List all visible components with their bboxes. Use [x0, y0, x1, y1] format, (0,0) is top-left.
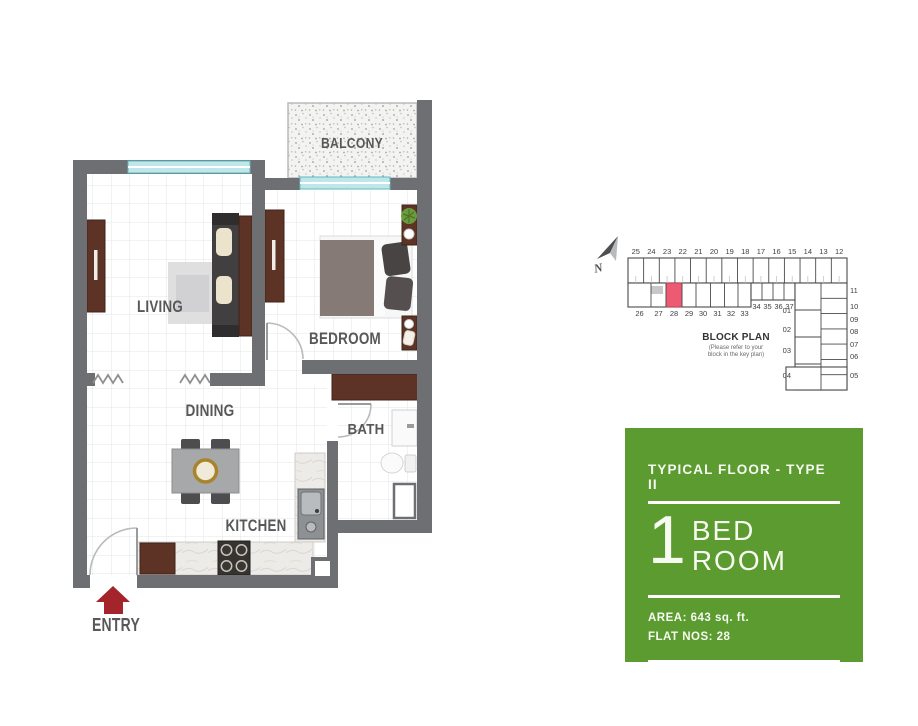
sink-knob: [306, 522, 316, 532]
divider-rule: [648, 660, 840, 663]
north-arrow-icon: N: [592, 236, 618, 276]
unit-number: 20: [710, 247, 718, 256]
unit-number: 30: [699, 309, 707, 318]
unit-number: 29: [685, 309, 693, 318]
floor-plan: BALCONY: [55, 85, 445, 645]
unit-number: 14: [804, 247, 812, 256]
info-panel: TYPICAL FLOOR - TYPE II 1 BED ROOM AREA:…: [625, 428, 863, 662]
living-window: [128, 161, 250, 173]
bed-duvet: [320, 240, 376, 316]
block-plan-caption-1: (Please refer to your: [709, 345, 763, 351]
cabinet-handle: [94, 250, 98, 280]
unit-number: 36: [774, 302, 782, 311]
tap-icon: [407, 424, 414, 428]
shaft: [394, 484, 415, 518]
unit-number: 07: [850, 340, 858, 349]
building-outline: [628, 258, 847, 390]
balcony: BALCONY: [288, 103, 417, 178]
unit-number: 15: [788, 247, 796, 256]
faucet-icon: [315, 509, 319, 513]
unit-number: 03: [783, 346, 791, 355]
north-label: N: [592, 260, 606, 276]
decor-item: [405, 320, 414, 329]
wardrobe-handle: [272, 240, 276, 270]
unit-number: 33: [740, 309, 748, 318]
divider-rule: [648, 595, 840, 598]
unit-number: 04: [783, 371, 791, 380]
bath-wardrobe: [332, 374, 418, 400]
bedroom-count: 1: [648, 508, 684, 573]
bed-pillow: [383, 276, 413, 312]
unit-number: 02: [783, 325, 791, 334]
bedroom-count-row: 1 BED ROOM: [648, 508, 840, 586]
unit-number: 05: [850, 371, 858, 380]
type-line-1: BED: [692, 516, 787, 546]
dining-label: DINING: [186, 402, 235, 420]
block-plan-title: BLOCK PLAN: [702, 332, 770, 343]
unit-number: 34: [752, 302, 760, 311]
sofa-armrest-top: [212, 213, 239, 225]
sofa-cushion: [216, 228, 232, 256]
block-plan: N 25242322212019181716151413122627282930…: [580, 228, 880, 398]
unit-number: 24: [647, 247, 655, 256]
unit-number: 18: [741, 247, 749, 256]
unit-number: 21: [694, 247, 702, 256]
toilet-tank: [405, 455, 416, 472]
bedroom-type: BED ROOM: [692, 516, 787, 576]
toilet: [381, 453, 403, 473]
unit-number: 35: [763, 302, 771, 311]
unit-number: 31: [713, 309, 721, 318]
page: BALCONY: [0, 0, 918, 726]
bed-pillow: [381, 241, 411, 276]
kitchen-cabinet: [140, 543, 175, 574]
sofa-console: [239, 216, 252, 336]
unit-number: 12: [835, 247, 843, 256]
unit-number: 16: [772, 247, 780, 256]
unit-number: 28: [670, 309, 678, 318]
kitchen-label: KITCHEN: [226, 517, 287, 535]
column: [315, 561, 330, 576]
unit-number: 10: [850, 302, 858, 311]
unit-number: 23: [663, 247, 671, 256]
entry-arrow-icon: [96, 586, 130, 614]
stairs: [651, 286, 663, 294]
highlighted-flat-28: [666, 283, 682, 307]
unit-number: 08: [850, 327, 858, 336]
unit-number: 01: [783, 306, 791, 315]
sofa-cushion: [216, 276, 232, 304]
unit-number: 25: [632, 247, 640, 256]
entry-marker: ENTRY: [92, 586, 140, 635]
panel-title: TYPICAL FLOOR - TYPE II: [648, 462, 840, 492]
flat-nos-label: FLAT NOS: 28: [648, 631, 840, 643]
balcony-slider-window: [300, 177, 390, 189]
balcony-label: BALCONY: [321, 136, 383, 152]
unit-number: 26: [635, 309, 643, 318]
unit-number: 32: [727, 309, 735, 318]
living-label: LIVING: [137, 298, 183, 316]
unit-number: 17: [757, 247, 765, 256]
unit-number: 13: [819, 247, 827, 256]
entry-label: ENTRY: [92, 614, 140, 635]
type-line-2: ROOM: [692, 546, 787, 576]
unit-number: 27: [654, 309, 662, 318]
sofa-armrest-bottom: [212, 325, 239, 337]
unit-number: 11: [850, 286, 858, 295]
area-label: AREA: 643 sq. ft.: [648, 612, 840, 624]
unit-number: 06: [850, 352, 858, 361]
block-plan-caption-2: block in the key plan): [708, 352, 764, 358]
unit-number: 19: [725, 247, 733, 256]
bedroom-label: BEDROOM: [309, 330, 381, 348]
lamp: [404, 229, 414, 239]
table-centerpiece: [195, 460, 217, 482]
bath-label: BATH: [348, 422, 385, 438]
unit-number: 09: [850, 315, 858, 324]
unit-number: 22: [679, 247, 687, 256]
